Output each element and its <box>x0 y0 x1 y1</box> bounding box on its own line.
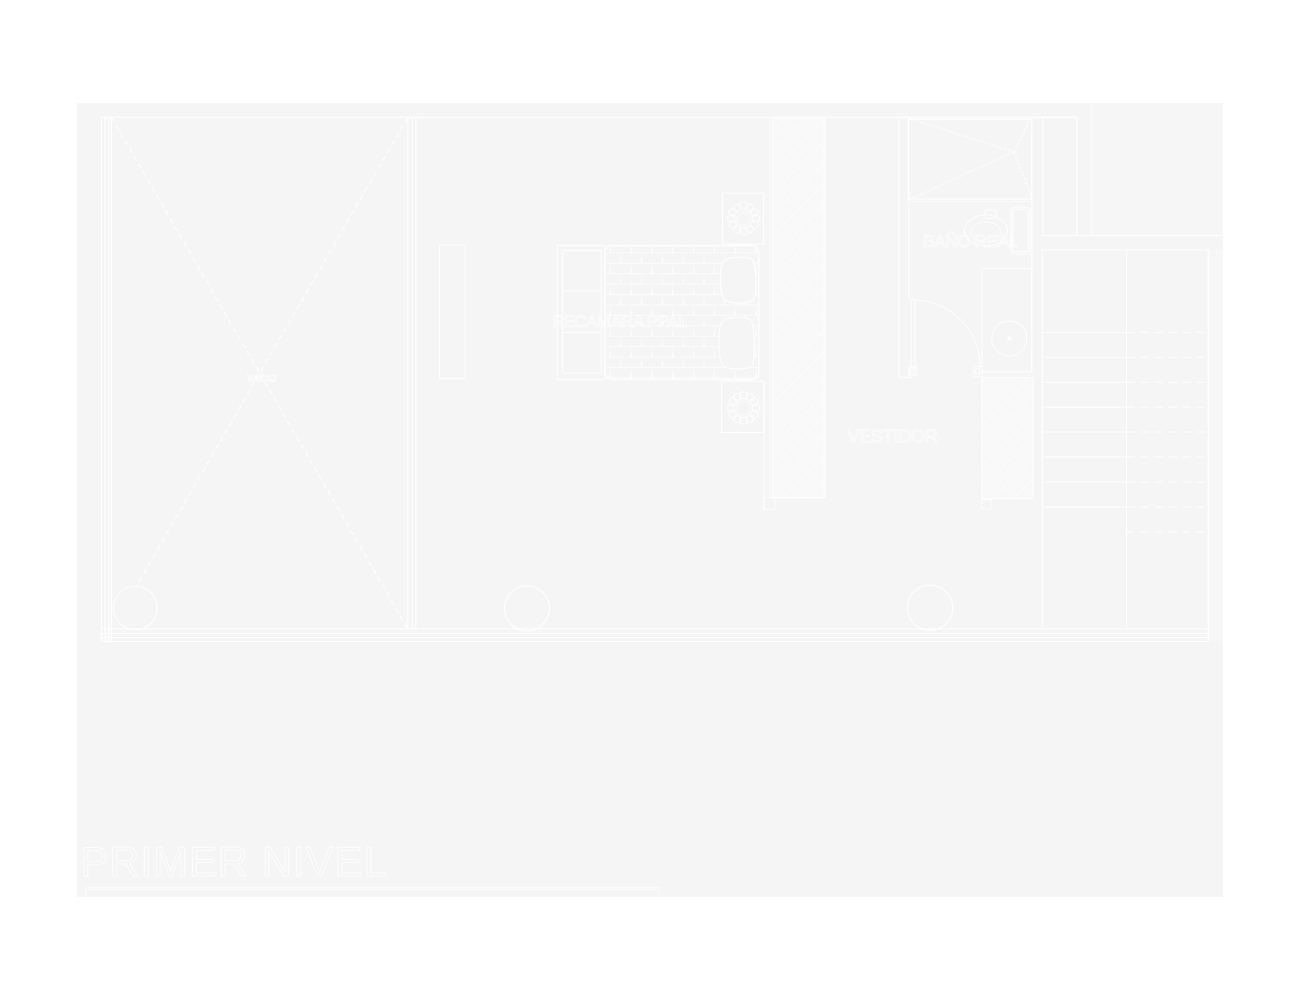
svg-text:VACIO: VACIO <box>247 374 277 384</box>
svg-text:PRIMER NIVEL: PRIMER NIVEL <box>81 838 388 885</box>
svg-text:BAÑO REAL: BAÑO REAL <box>923 230 1019 251</box>
svg-text:VESTIDOR: VESTIDOR <box>848 426 938 446</box>
svg-text:RECAMARA PPAL: RECAMARA PPAL <box>552 312 687 331</box>
